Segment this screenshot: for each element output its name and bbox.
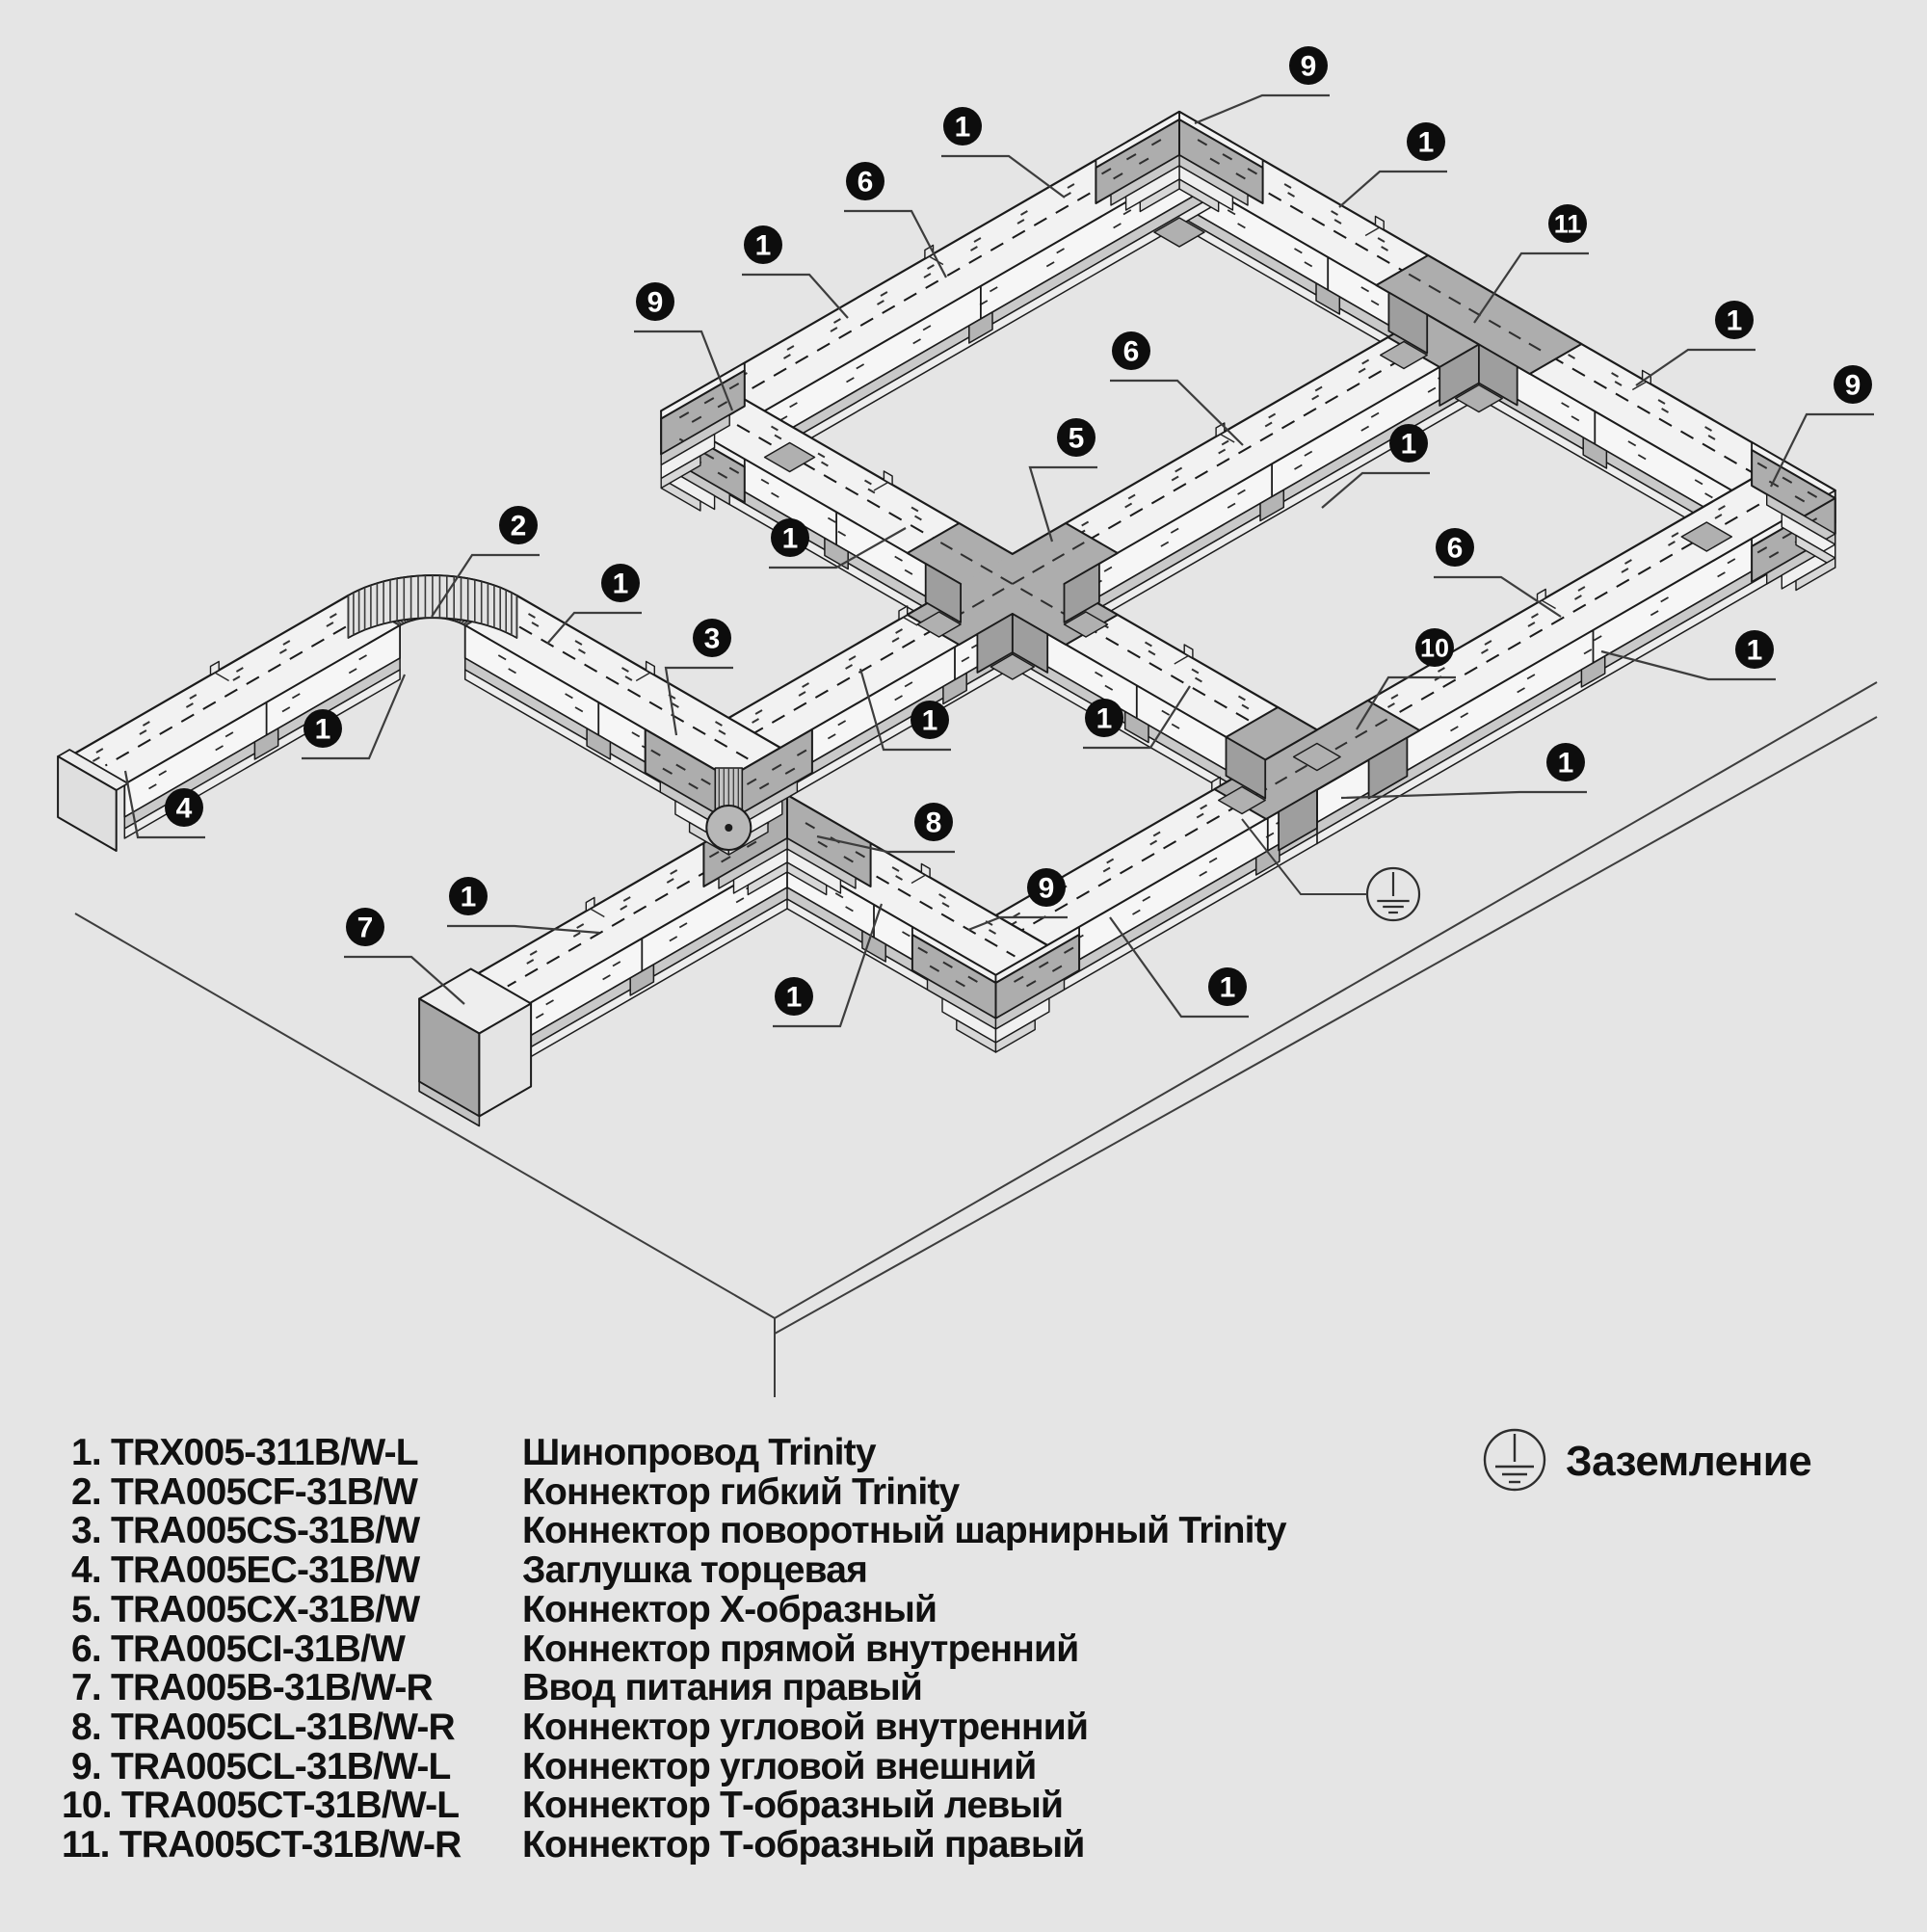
svg-text:6: 6	[858, 167, 874, 198]
svg-text:1: 1	[786, 982, 803, 1014]
svg-text:6: 6	[1123, 336, 1140, 368]
svg-text:1: 1	[315, 714, 331, 746]
svg-text:1: 1	[755, 230, 772, 262]
svg-text:1: 1	[955, 112, 971, 144]
svg-text:3: 3	[704, 623, 721, 655]
svg-text:1: 1	[1096, 703, 1113, 735]
svg-text:1: 1	[613, 569, 629, 600]
svg-text:1: 1	[1418, 127, 1435, 159]
svg-text:8: 8	[926, 807, 942, 839]
svg-text:1: 1	[782, 523, 799, 555]
svg-text:6: 6	[1447, 533, 1464, 565]
svg-text:2: 2	[511, 511, 527, 543]
svg-text:5: 5	[1069, 423, 1085, 455]
svg-text:9: 9	[1301, 51, 1317, 83]
svg-text:1: 1	[1558, 748, 1574, 780]
svg-text:1: 1	[1727, 305, 1743, 337]
svg-text:4: 4	[176, 793, 193, 825]
svg-text:1: 1	[461, 882, 477, 913]
svg-text:10: 10	[1420, 634, 1449, 663]
svg-text:9: 9	[647, 287, 664, 319]
svg-text:1: 1	[1220, 972, 1236, 1004]
svg-text:1: 1	[1401, 429, 1417, 461]
svg-text:1: 1	[922, 705, 938, 737]
svg-text:9: 9	[1039, 873, 1055, 905]
svg-text:11: 11	[1554, 210, 1582, 239]
svg-text:9: 9	[1845, 370, 1861, 402]
svg-text:1: 1	[1747, 635, 1763, 667]
svg-text:7: 7	[357, 913, 374, 944]
